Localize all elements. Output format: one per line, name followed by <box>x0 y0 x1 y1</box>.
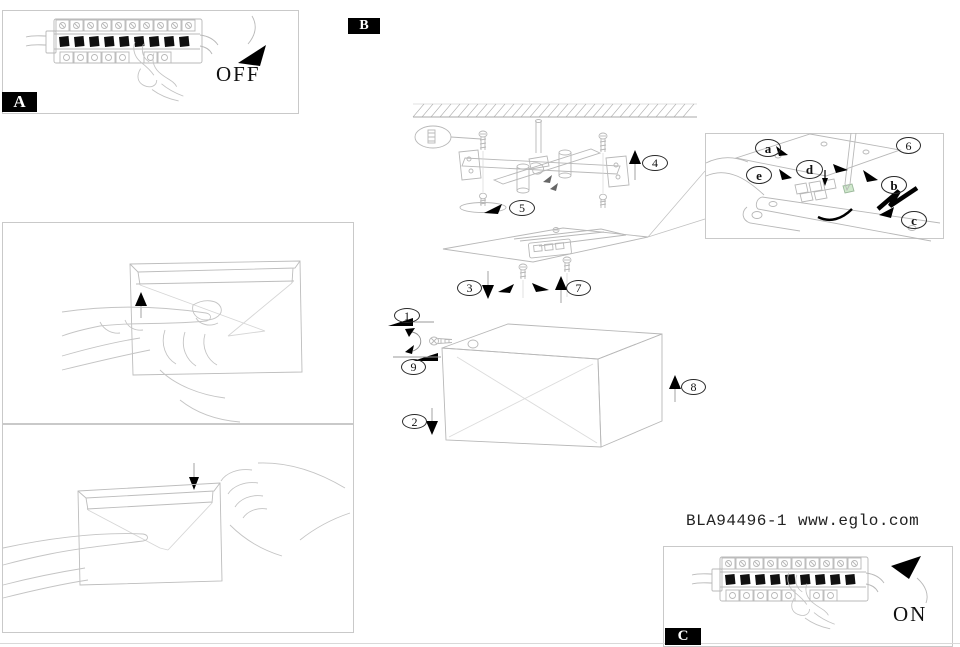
step-8-callout: 8 <box>681 379 706 395</box>
step-5-callout: 5 <box>509 200 535 216</box>
part-d-callout: d <box>796 160 823 179</box>
step5-arrow-icon <box>484 204 502 214</box>
ceiling-hatch <box>413 104 697 117</box>
wall-plug-detail <box>415 126 481 148</box>
step-1-callout: 1 <box>394 308 420 323</box>
step8-up-arrow-icon <box>669 375 681 389</box>
step-6-callout: 6 <box>896 137 921 154</box>
shade-screw <box>430 337 453 345</box>
step2-down-arrow-icon <box>426 421 438 435</box>
bracket-screw-left <box>479 131 487 150</box>
section-b-letter: B <box>359 18 368 34</box>
step4-up-arrow-icon <box>629 150 641 164</box>
sheet-bottom-rule <box>0 643 960 644</box>
unscrew-left-arrow-icon <box>498 284 514 293</box>
bracket-screw-right <box>599 133 607 152</box>
rotate-arrow-top-icon <box>405 328 415 337</box>
off-state-text: OFF <box>216 62 261 87</box>
part-e-callout: e <box>746 166 772 184</box>
terminal-connector <box>528 228 571 259</box>
on-state-text: ON <box>893 602 927 627</box>
section-b-label: B <box>348 18 380 34</box>
panel-shade-lift <box>2 222 354 425</box>
plate-screw-left <box>519 264 527 279</box>
step-7-callout: 7 <box>566 280 591 296</box>
part-c-callout: c <box>901 211 927 229</box>
section-c-label: C <box>665 628 701 645</box>
model-code: BLA94496-1 <box>686 512 787 530</box>
step-2-callout: 2 <box>402 414 427 429</box>
anchor-screw-right <box>600 194 607 208</box>
lamp-shade-cube <box>405 324 662 447</box>
rotate-arc <box>412 332 421 351</box>
unscrew-right-arrow-icon <box>532 283 549 292</box>
section-c-letter: C <box>678 628 689 645</box>
rotate-arrow-bottom-icon <box>405 345 414 354</box>
part-a-callout: a <box>755 139 781 157</box>
step-9-callout: 9 <box>401 359 426 375</box>
step-4-callout: 4 <box>642 155 668 171</box>
part-b-callout: b <box>881 176 907 194</box>
plate-screw-right <box>563 257 571 272</box>
panel-shade-place <box>2 423 354 633</box>
footer-text: BLA94496-1www.eglo.com <box>686 512 919 530</box>
panel-c-power-on <box>663 546 953 647</box>
mounting-bracket <box>459 120 629 213</box>
mounting-plate <box>443 171 705 298</box>
step3-down-arrow-icon <box>482 285 494 299</box>
anchor-screw-left <box>460 193 506 212</box>
instruction-sheet: A B C OFF ON 1 2 3 4 5 6 7 8 9 a b c d e… <box>0 0 960 647</box>
section-a-label: A <box>2 92 37 112</box>
section-a-letter: A <box>13 92 25 112</box>
step-3-callout: 3 <box>457 280 482 296</box>
detail-callout-lines <box>648 171 705 237</box>
website-url: www.eglo.com <box>798 512 919 530</box>
